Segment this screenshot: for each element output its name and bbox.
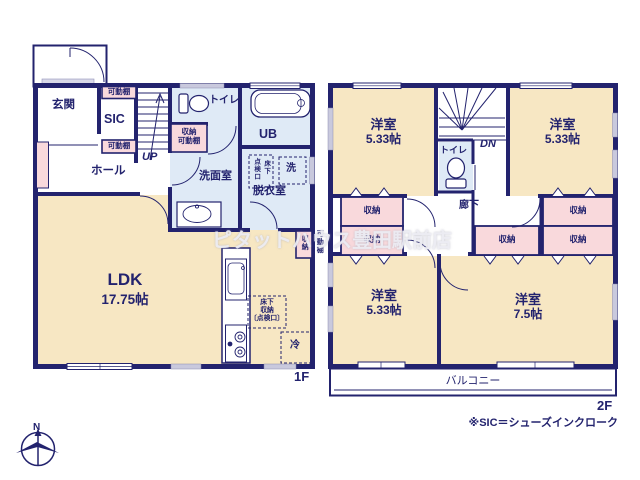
label-toilet-2f: トイレ — [440, 145, 467, 156]
compass-icon — [16, 429, 59, 466]
label-room-tr-name: 洋室 — [510, 117, 615, 132]
sic-note: ※SIC＝シューズインクローク — [469, 417, 618, 430]
watermark: ピタットハウス豊田駅前店 — [212, 224, 452, 253]
compass-north-label: N — [33, 422, 40, 434]
label-washroom: 洗面室 — [199, 170, 232, 183]
label-room-tl: 洋室 5.33帖 — [333, 117, 434, 146]
label-underfloor-storage-l2: 収納 — [248, 307, 286, 315]
label-storage-shelf: 収納 可動棚 — [171, 128, 207, 146]
label-underfloor-storage-l1: 床下 — [248, 299, 286, 307]
label-underfloor-storage-l3: 〔点検口〕 — [248, 315, 286, 323]
label-room-tr: 洋室 5.33帖 — [510, 117, 615, 146]
label-room-tl-size: 5.33帖 — [333, 132, 434, 146]
label-sic: SIC — [104, 112, 125, 127]
label-dn: DN — [480, 138, 496, 151]
label-balcony: バルコニー — [330, 375, 616, 388]
label-room-tl-name: 洋室 — [333, 117, 434, 132]
label-shelf-bottom: 可動棚 — [102, 142, 136, 151]
label-washer: 洗 — [286, 163, 296, 175]
label-hall: ホール — [91, 165, 126, 179]
bathtub-icon — [251, 90, 310, 117]
label-storage-shelf-l2: 可動棚 — [171, 137, 207, 146]
label-ldk-size: 17.75帖 — [70, 292, 180, 308]
label-floor2: 2F — [597, 398, 612, 413]
label-room-bl-size: 5.33帖 — [333, 303, 435, 317]
label-closet-d: 収納 — [543, 205, 613, 215]
label-toilet-1f: トイレ — [209, 95, 239, 107]
label-entrance: 玄関 — [52, 99, 75, 113]
label-underfloor-storage: 床下 収納 〔点検口〕 — [248, 299, 286, 323]
label-room-br-size: 7.5帖 — [441, 307, 615, 321]
toilet-icon-2f — [446, 158, 466, 188]
label-unit-bath: UB — [259, 127, 277, 142]
floorplan-page: 玄関 SIC 可動棚 可動棚 ホール UP トイレ 収納 可動棚 洗面室 UB … — [0, 0, 640, 480]
stairs-2f — [439, 88, 505, 136]
label-hatch-col-right: 床下 — [262, 160, 270, 175]
toilet-icon-1f — [179, 94, 209, 113]
porch — [34, 46, 107, 87]
label-room-br-name: 洋室 — [441, 292, 615, 307]
label-hatch-col-left: 点検口 — [252, 158, 260, 181]
label-room-bl-name: 洋室 — [333, 288, 435, 303]
hall-closet — [37, 142, 49, 188]
label-ldk: LDK — [70, 270, 180, 290]
label-fridge: 冷 — [290, 340, 300, 352]
label-closet-e: 収納 — [543, 234, 613, 244]
label-corridor: 廊下 — [459, 200, 479, 212]
kitchen-counter — [222, 248, 250, 363]
label-room-br: 洋室 7.5帖 — [441, 292, 615, 321]
label-up: UP — [142, 151, 157, 164]
label-shelf-top: 可動棚 — [102, 88, 136, 97]
label-room-tr-size: 5.33帖 — [510, 132, 615, 146]
label-closet-a: 収納 — [341, 205, 403, 215]
label-room-bl: 洋室 5.33帖 — [333, 288, 435, 317]
label-closet-c: 収納 — [475, 234, 539, 244]
label-floor1: 1F — [294, 369, 309, 384]
label-dressing: 脱衣室 — [253, 185, 286, 198]
